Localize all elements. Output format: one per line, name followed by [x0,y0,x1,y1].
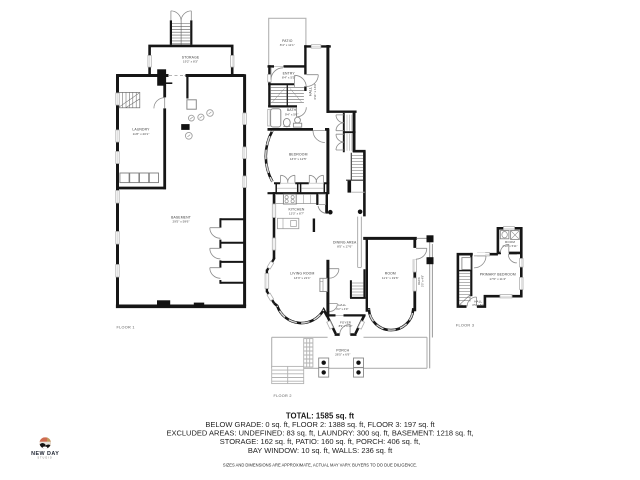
svg-text:NEW DAY: NEW DAY [31,451,59,457]
svg-text:19'2" x 8'3": 19'2" x 8'3" [183,60,198,64]
svg-text:11'1" x 19'6": 11'1" x 19'6" [382,276,399,280]
svg-text:BAY WINDOW: 10 sq. ft, WALLS:: BAY WINDOW: 10 sq. ft, WALLS: 236 sq. ft [248,446,393,455]
svg-text:STUDIO: STUDIO [38,458,53,460]
svg-text:FLOOR 2: FLOOR 2 [274,394,292,398]
svg-text:26'5" x 6'9": 26'5" x 6'9" [335,353,350,357]
svg-text:3'5" x 4'9": 3'5" x 4'9" [420,275,424,287]
svg-text:8'4" x 5'5": 8'4" x 5'5" [282,76,296,80]
svg-text:8'4" x 11'1": 8'4" x 11'1" [280,43,295,47]
svg-text:SIZES AND DIMENSIONS ARE APPRO: SIZES AND DIMENSIONS ARE APPROXIMATE, AC… [223,463,417,468]
svg-text:4'10" x 5'11": 4'10" x 5'11" [502,244,517,248]
svg-text:FLOOR 1: FLOOR 1 [117,326,135,330]
svg-text:8'9" x 9'10": 8'9" x 9'10" [339,324,353,328]
svg-text:13'3" x 12'5": 13'3" x 12'5" [290,157,307,161]
svg-text:13'3" x 8'7": 13'3" x 8'7" [289,212,304,216]
svg-text:13'3" x 21'1": 13'3" x 21'1" [294,276,311,280]
svg-text:STORAGE: 162 sq. ft, PATIO: 16: STORAGE: 162 sq. ft, PATIO: 160 sq. ft, … [220,437,421,446]
svg-text:9'4" x 5'6": 9'4" x 5'6" [285,112,299,116]
svg-text:8'5" x 17'6": 8'5" x 17'6" [337,245,352,249]
svg-text:BELOW GRADE: 0 sq. ft, FLOOR 2: BELOW GRADE: 0 sq. ft, FLOOR 2: 1388 sq.… [205,420,435,429]
svg-text:11'8" x 20'1": 11'8" x 20'1" [133,132,150,136]
svg-text:3'5" x 6'2": 3'5" x 6'2" [472,303,484,307]
svg-text:29'5" x 59'6": 29'5" x 59'6" [173,220,190,224]
svg-text:17'0" x 11'4": 17'0" x 11'4" [489,277,506,281]
svg-text:FLOOR 3: FLOOR 3 [456,323,474,327]
svg-text:3'2" x 4'9": 3'2" x 4'9" [336,307,348,311]
svg-text:3'11" x 16'9": 3'11" x 16'9" [313,83,317,100]
